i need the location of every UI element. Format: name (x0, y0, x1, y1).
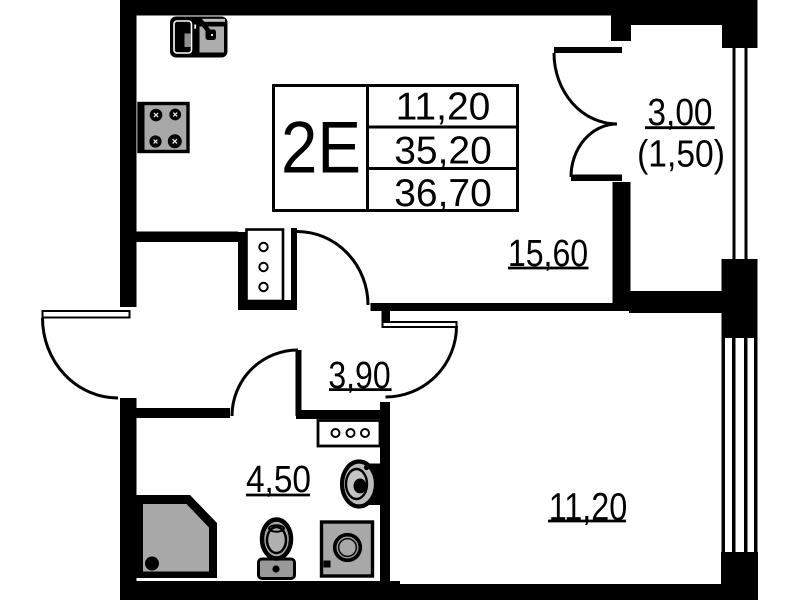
svg-text:35,20: 35,20 (394, 130, 492, 173)
svg-text:36,70: 36,70 (394, 172, 492, 215)
svg-text:(1,50): (1,50) (637, 133, 725, 175)
svg-text:2E: 2E (281, 106, 361, 188)
svg-text:11,20: 11,20 (396, 86, 491, 129)
